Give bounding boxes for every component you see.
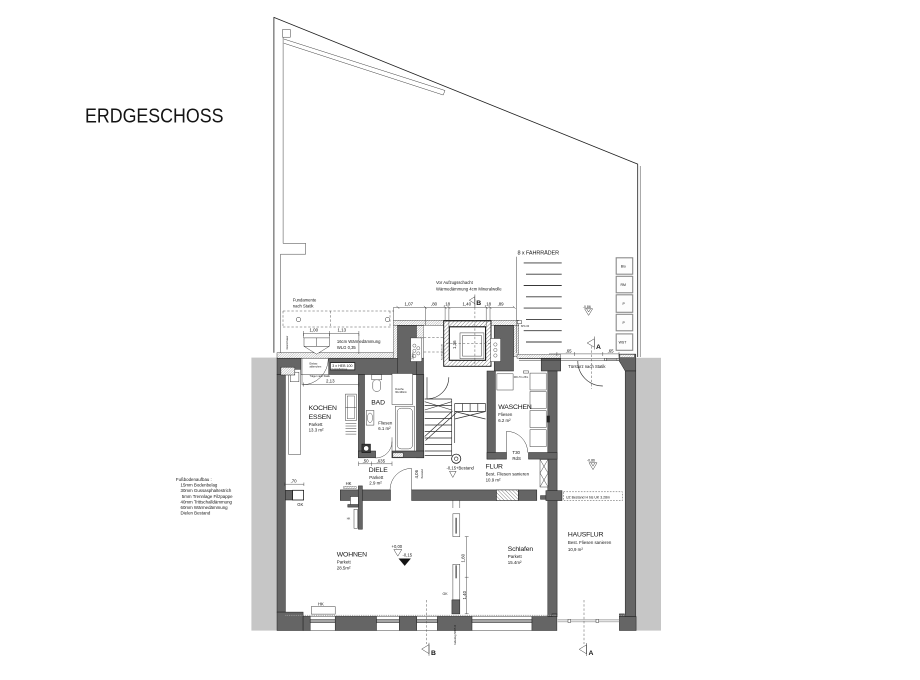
svg-text:8 x FAHRRÄDER: 8 x FAHRRÄDER	[518, 250, 560, 257]
svg-text:FLUR: FLUR	[486, 464, 503, 471]
svg-text:6.1 m²: 6.1 m²	[378, 426, 391, 431]
svg-text:,70: ,70	[291, 478, 298, 483]
svg-text:1,60: 1,60	[460, 553, 465, 562]
svg-text:60mm Wärmedämmung: 60mm Wärmedämmung	[181, 505, 229, 510]
svg-text:3 x HEB 100: 3 x HEB 100	[332, 364, 352, 368]
svg-text:Parkett: Parkett	[309, 422, 324, 427]
svg-text:2,13: 2,13	[326, 378, 335, 383]
svg-text:Best. Fliesen sanieren: Best. Fliesen sanieren	[568, 540, 612, 545]
svg-text:UZ Bestand H bis UK 3.28m: UZ Bestand H bis UK 3.28m	[566, 495, 610, 499]
svg-text:,80: ,80	[431, 302, 438, 307]
svg-text:RdS: RdS	[512, 456, 521, 461]
svg-text:DKI-H 1.25m: DKI-H 1.25m	[514, 376, 528, 379]
svg-text:,635: ,635	[377, 458, 386, 463]
svg-text:10,9 m²: 10,9 m²	[568, 547, 583, 552]
svg-text:Fliesen: Fliesen	[378, 421, 393, 426]
svg-text:Bio: Bio	[621, 264, 626, 268]
svg-text:15mm Bodenbelag: 15mm Bodenbelag	[181, 483, 218, 488]
svg-text:-0,15: -0,15	[403, 553, 413, 558]
svg-text:1,40: 1,40	[463, 302, 472, 307]
svg-text:1,07: 1,07	[405, 302, 414, 307]
svg-text:HK: HK	[346, 481, 352, 486]
svg-text:Fliesen: Fliesen	[498, 412, 513, 417]
svg-text:HK: HK	[347, 518, 351, 521]
svg-text:WASCHEN: WASCHEN	[498, 404, 532, 411]
svg-text:Best. Fliesen sanieren: Best. Fliesen sanieren	[486, 472, 530, 477]
svg-text:WST: WST	[619, 341, 628, 345]
svg-text:B: B	[431, 650, 436, 657]
svg-text:KOCHEN: KOCHEN	[309, 405, 337, 412]
svg-text:13.3 m²: 13.3 m²	[309, 428, 324, 433]
svg-text:2.9 m²: 2.9 m²	[369, 481, 382, 486]
svg-text:Parkett: Parkett	[369, 475, 384, 480]
svg-text:WOHNEN: WOHNEN	[337, 552, 367, 559]
svg-text:Vor Aufzugsschacht: Vor Aufzugsschacht	[436, 280, 474, 285]
svg-text:,18: ,18	[444, 302, 451, 307]
svg-text:SH1.00: SH1.00	[521, 325, 530, 328]
svg-text:Parkett: Parkett	[508, 554, 523, 559]
svg-text:Türsturz nach Statik: Türsturz nach Statik	[568, 364, 606, 369]
svg-text:BAD: BAD	[371, 400, 385, 407]
svg-text:Dielen Bestand: Dielen Bestand	[181, 511, 211, 516]
svg-text:Grenzmauer: Grenzmauer	[286, 335, 289, 349]
svg-text:1,13: 1,13	[338, 327, 347, 332]
svg-text:Fußbodenaufbau :: Fußbodenaufbau :	[176, 477, 212, 482]
svg-text:HK: HK	[318, 602, 324, 607]
svg-text:GK: GK	[443, 592, 449, 596]
svg-text:,50: ,50	[363, 458, 370, 463]
svg-text:Bestand: Bestand	[421, 469, 424, 479]
svg-text:+0,00: +0,00	[392, 544, 403, 549]
svg-text:1,40: 1,40	[462, 590, 467, 599]
svg-text:DIELE: DIELE	[369, 467, 389, 474]
svg-text:4,06: 4,06	[414, 469, 419, 478]
svg-text:abbrechen: abbrechen	[310, 366, 322, 369]
svg-text:WLG 0,35: WLG 0,35	[337, 345, 357, 350]
svg-text:6.2 m²: 6.2 m²	[498, 418, 511, 423]
svg-text:Kabelzug 58/05 O: Kabelzug 58/05 O	[454, 625, 457, 645]
svg-text:Fundamente: Fundamente	[293, 298, 317, 303]
svg-text:90x160cm: 90x160cm	[395, 391, 407, 394]
svg-text:,65: ,65	[608, 348, 615, 353]
svg-text:-0,86: -0,86	[583, 305, 591, 309]
svg-text:B: B	[476, 300, 481, 307]
svg-text:Parkett: Parkett	[337, 560, 352, 565]
svg-text:ESSEN: ESSEN	[309, 414, 332, 421]
svg-text:5mm Trennlage Filzpappe: 5mm Trennlage Filzpappe	[182, 494, 233, 499]
svg-text:Kunststoffunterzug: Kunststoffunterzug	[332, 367, 348, 370]
svg-text:A: A	[596, 344, 601, 351]
svg-text:Zähler: Zähler	[412, 352, 415, 359]
svg-text:Nachbarschacht: Nachbarschacht	[441, 344, 444, 360]
svg-text:30mm Gussasphaltestrich: 30mm Gussasphaltestrich	[181, 488, 232, 493]
svg-text:nach Statik: nach Statik	[293, 304, 315, 309]
svg-text:10.9 m²: 10.9 m²	[486, 478, 501, 483]
svg-text:15.4m²: 15.4m²	[508, 560, 522, 565]
svg-text:Schlafen: Schlafen	[508, 546, 534, 553]
svg-text:,89: ,89	[498, 302, 505, 307]
svg-text:,65: ,65	[566, 348, 573, 353]
svg-text:T30: T30	[512, 450, 520, 455]
svg-text:1,00: 1,00	[310, 327, 319, 332]
svg-text:GK: GK	[297, 502, 303, 507]
svg-text:40mm Trittschalldämmung: 40mm Trittschalldämmung	[181, 499, 233, 504]
svg-text:HAUSFLUR: HAUSFLUR	[568, 532, 604, 539]
svg-text:,18: ,18	[485, 302, 492, 307]
svg-text:28.5m²: 28.5m²	[337, 566, 351, 571]
svg-text:A: A	[589, 650, 594, 657]
svg-text:Wärmedämmung 4cm Mineralwolle: Wärmedämmung 4cm Mineralwolle	[436, 287, 502, 292]
svg-text:ERDGESCHOSS: ERDGESCHOSS	[85, 105, 224, 128]
svg-text:1,36: 1,36	[452, 340, 457, 349]
svg-text:-0,86: -0,86	[587, 459, 595, 463]
svg-text:RM: RM	[621, 283, 627, 287]
svg-text:-0,15+Bestand: -0,15+Bestand	[447, 465, 475, 470]
